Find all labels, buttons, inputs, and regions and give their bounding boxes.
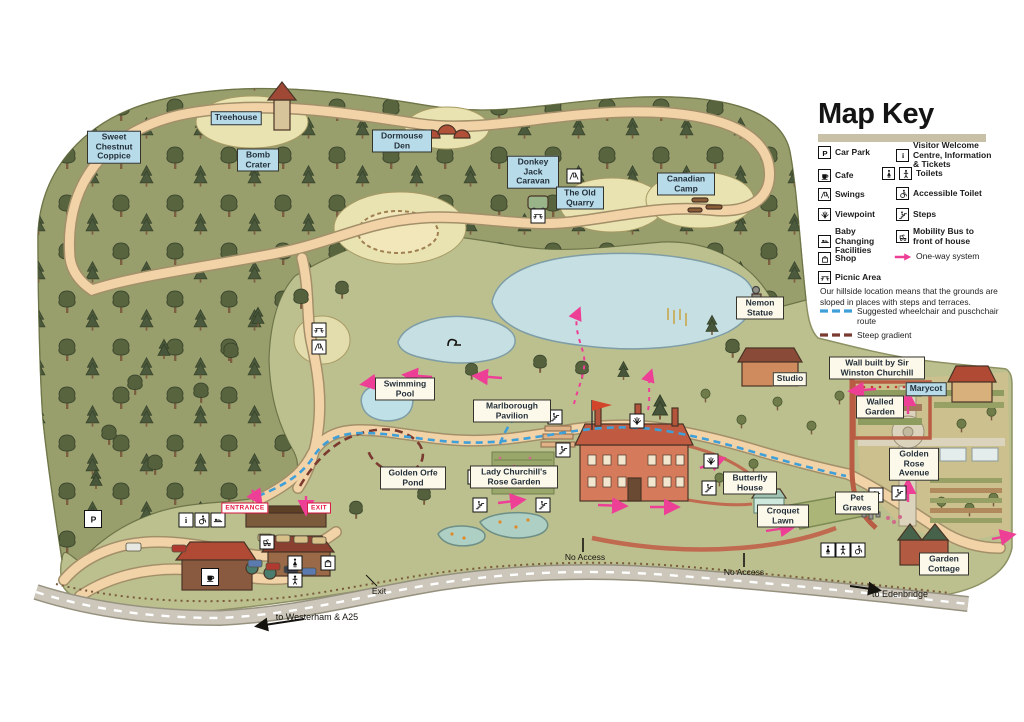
entrance-sign: ENTRANCE [221, 503, 268, 514]
label-walled-garden: Walled Garden [856, 395, 904, 418]
label-swimming-pool: Swimming Pool [375, 377, 435, 400]
map-toilets-man-icon [288, 573, 303, 588]
key-car-park: Car Park [818, 146, 893, 159]
accessible-toilet-icon [896, 187, 909, 200]
label-marycot: Marycot [906, 382, 947, 396]
map-shop-icon [321, 556, 336, 571]
map-picnic-icon-1 [312, 323, 327, 338]
toilets-woman-icon [882, 167, 895, 180]
no-access-text-1: No Access [565, 552, 605, 562]
map-steps-icon-2 [556, 443, 571, 458]
key-accessible-toilet: Accessible Toilet [896, 187, 993, 200]
label-lady-churchills-rose-garden: Lady Churchill's Rose Garden [470, 465, 558, 488]
label-bomb-crater: Bomb Crater [237, 148, 279, 171]
info-icon [896, 149, 909, 162]
map-key-title: Map Key [818, 100, 1018, 129]
map-picnic-icon-2 [531, 209, 546, 224]
map-steps-icon-8 [892, 486, 907, 501]
label-garden-cottage: Garden Cottage [919, 552, 969, 575]
key-toilets: Toilets [882, 167, 943, 180]
steps-icon [896, 208, 909, 221]
label-golden-rose-avenue: Golden Rose Avenue [889, 448, 939, 481]
toilets-man-icon [899, 167, 912, 180]
map-steps-icon-4 [473, 498, 488, 513]
map-toilets-woman-icon [288, 556, 303, 571]
label-golden-orfe-pond: Golden Orfe Pond [380, 466, 446, 489]
one-way-icon [894, 252, 912, 262]
key-picnic-area: Picnic Area [818, 271, 893, 284]
label-sweet-chestnut-coppice: Sweet Chestnut Coppice [87, 131, 141, 164]
no-access-text-2: No Access [724, 567, 764, 577]
map-car-park-icon [84, 510, 102, 528]
label-studio: Studio [773, 372, 807, 386]
map-baby-changing-icon [211, 513, 226, 528]
big-lake [492, 253, 754, 348]
label-pet-graves: Pet Graves [835, 491, 879, 514]
map-key-title-bar [818, 134, 986, 142]
label-churchill-wall: Wall built by Sir Winston Churchill [829, 356, 925, 379]
viewpoint-icon [818, 208, 831, 221]
map-swings-icon-1 [312, 340, 327, 355]
key-viewpoint: Viewpoint [818, 208, 893, 221]
map-info-icon [179, 513, 194, 528]
mobility-bus-icon [896, 230, 909, 243]
label-dormouse-den: Dormouse Den [372, 129, 432, 152]
key-one-way: One-way system [894, 252, 979, 262]
key-steep-gradient: Steep gradient [820, 330, 999, 340]
label-donkey-jack-caravan: Donkey Jack Caravan [507, 156, 559, 189]
exit-sign: EXIT [307, 503, 331, 514]
map-cafe-icon [201, 568, 219, 586]
map-toilets-woman-icon-2 [821, 543, 836, 558]
map-swings-icon-2 [567, 169, 582, 184]
map-accessible-toilet-icon [195, 513, 210, 528]
label-treehouse: Treehouse [211, 111, 262, 125]
map-viewpoint-icon-1 [630, 414, 645, 429]
key-shop: Shop [818, 252, 893, 265]
exit-road-text: Exit [372, 586, 386, 596]
label-the-old-quarry: The Old Quarry [556, 186, 604, 209]
marycot-cottage [948, 366, 996, 402]
map-steps-icon-5 [536, 498, 551, 513]
map-key-note: Our hillside location means that the gro… [820, 286, 1016, 308]
baby-changing-icon [818, 235, 831, 248]
key-mobility-bus: Mobility Bus to front of house [896, 227, 979, 246]
wheelchair-route-sample [820, 308, 852, 314]
label-croquet-lawn: Croquet Lawn [757, 504, 809, 527]
label-butterfly-house: Butterfly House [723, 471, 777, 494]
label-nemon-statue: Nemon Statue [736, 296, 784, 319]
to-westerham-text: to Westerham & A25 [276, 612, 358, 622]
map-toilets-man-icon-2 [836, 543, 851, 558]
map-steps-icon-6 [702, 481, 717, 496]
to-edenbridge-text: to Edenbridge [872, 589, 928, 599]
map-viewpoint-icon-2 [704, 454, 719, 469]
label-marlborough-pavilion: Marlborough Pavilion [473, 399, 551, 422]
key-visitor-centre: Visitor Welcome Centre, Information & Ti… [896, 141, 995, 170]
steep-gradient-sample [820, 332, 852, 338]
chartwell-illustrated-map: P i [0, 0, 1024, 722]
key-wheelchair-route: Suggested wheelchair and puschchair rout… [820, 306, 999, 326]
map-mobility-bus-icon [260, 535, 275, 550]
swings-icon [818, 188, 831, 201]
shop-icon [818, 252, 831, 265]
key-swings: Swings [818, 188, 893, 201]
map-accessible-toilet-icon-2 [851, 543, 866, 558]
label-canadian-camp: Canadian Camp [657, 172, 715, 195]
picnic-area-icon [818, 271, 831, 284]
key-steps: Steps [896, 208, 993, 221]
car-park-icon [818, 146, 831, 159]
cafe-icon [818, 169, 831, 182]
map-key-panel: Map Key [818, 100, 1018, 142]
